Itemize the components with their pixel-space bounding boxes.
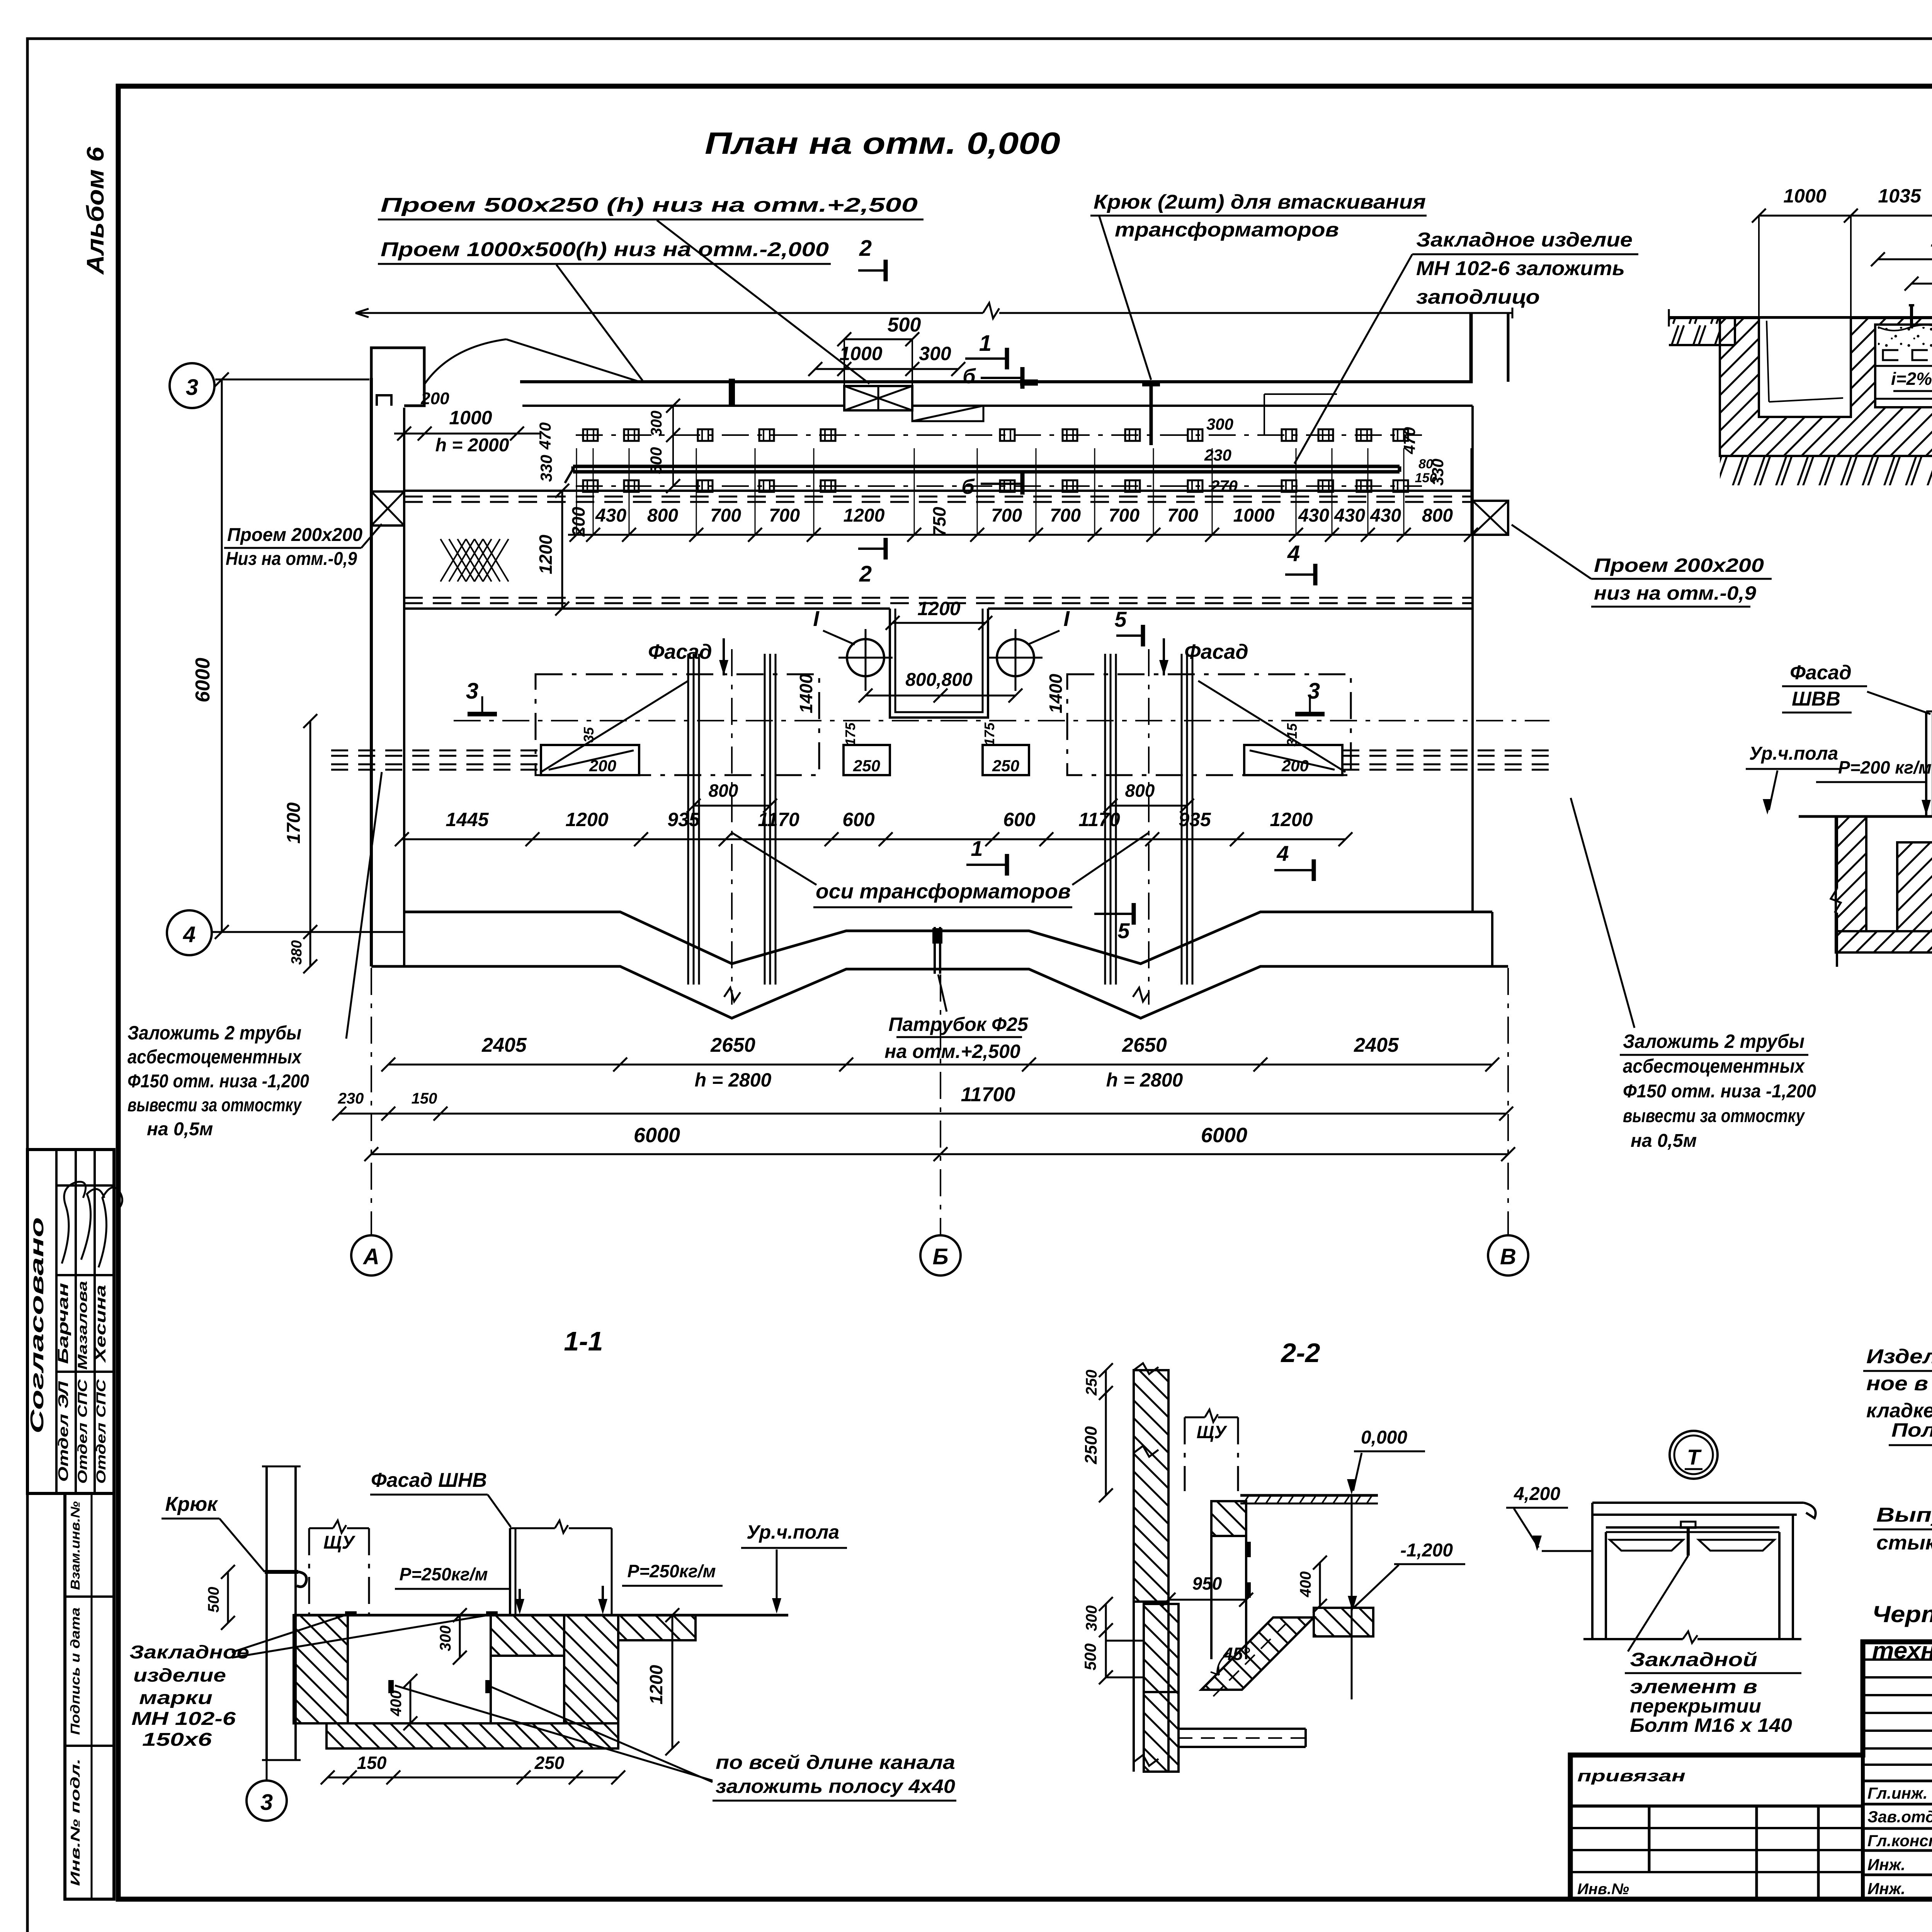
svg-text:Отдел СПС: Отдел СПС bbox=[75, 1379, 90, 1484]
svg-text:Гл.инж.: Гл.инж. bbox=[1867, 1784, 1928, 1802]
svg-text:500: 500 bbox=[205, 1587, 222, 1613]
svg-text:430: 430 bbox=[1298, 505, 1329, 526]
svg-text:1400: 1400 bbox=[1046, 673, 1066, 713]
svg-text:Чертеж разработан Новосиб: Чертеж разработан Новосибирским проектно… bbox=[1872, 1601, 1932, 1627]
svg-text:2500: 2500 bbox=[1082, 1426, 1100, 1464]
svg-text:1-1: 1-1 bbox=[564, 1326, 603, 1356]
svg-text:330: 330 bbox=[1429, 459, 1447, 486]
svg-text:470: 470 bbox=[1400, 427, 1418, 454]
svg-text:асбестоцементных: асбестоцементных bbox=[128, 1046, 302, 1068]
svg-text:6000: 6000 bbox=[192, 658, 214, 702]
svg-text:Заложить 2 трубы: Заложить 2 трубы bbox=[128, 1022, 301, 1044]
svg-text:1: 1 bbox=[979, 331, 992, 356]
svg-text:на отм.+2,500: на отм.+2,500 bbox=[884, 1041, 1020, 1062]
svg-text:1700: 1700 bbox=[284, 802, 304, 844]
svg-text:Ур.ч.пола: Ур.ч.пола bbox=[747, 1521, 839, 1543]
svg-text:Крюк (2шт) для втаскивания: Крюк (2шт) для втаскивания bbox=[1094, 191, 1426, 213]
svg-text:вывести за отмостку: вывести за отмостку bbox=[1623, 1106, 1805, 1126]
svg-text:800,800: 800,800 bbox=[905, 670, 973, 690]
svg-text:Б: Б bbox=[932, 1244, 948, 1269]
svg-text:935: 935 bbox=[667, 809, 700, 830]
svg-text:1400: 1400 bbox=[796, 673, 816, 713]
svg-text:Фасад: Фасад bbox=[1184, 640, 1248, 663]
svg-text:Согласовано: Согласовано bbox=[27, 1217, 48, 1434]
svg-text:i=2%: i=2% bbox=[1891, 369, 1932, 389]
svg-text:2-2: 2-2 bbox=[1280, 1338, 1320, 1368]
svg-text:МН 102-6 заложить: МН 102-6 заложить bbox=[1416, 257, 1625, 280]
svg-text:изделие: изделие bbox=[133, 1665, 226, 1686]
svg-text:230: 230 bbox=[338, 1090, 364, 1107]
svg-text:330: 330 bbox=[537, 455, 555, 482]
svg-text:I: I bbox=[813, 606, 820, 631]
svg-text:200: 200 bbox=[589, 757, 616, 775]
svg-text:В: В bbox=[1500, 1244, 1516, 1269]
svg-text:ЩУ: ЩУ bbox=[1197, 1422, 1228, 1442]
svg-text:ШВВ: ШВВ bbox=[1792, 688, 1840, 710]
svg-text:4: 4 bbox=[183, 922, 196, 947]
svg-text:оси трансформаторов: оси трансформаторов bbox=[816, 880, 1071, 903]
svg-text:Болт М16 х 140: Болт М16 х 140 bbox=[1630, 1714, 1792, 1736]
svg-text:заподлицо: заподлицо bbox=[1416, 286, 1540, 308]
svg-text:700: 700 bbox=[1109, 505, 1139, 526]
svg-text:марки: марки bbox=[139, 1688, 213, 1708]
svg-text:430: 430 bbox=[1334, 505, 1365, 526]
svg-text:315: 315 bbox=[1284, 723, 1300, 747]
svg-text:300: 300 bbox=[437, 1626, 454, 1651]
svg-text:Изделие заклад-: Изделие заклад- bbox=[1866, 1345, 1932, 1368]
svg-text:на 0,5м: на 0,5м bbox=[1631, 1131, 1697, 1151]
svg-text:150: 150 bbox=[412, 1090, 437, 1107]
svg-text:трансформаторов: трансформаторов bbox=[1115, 219, 1339, 241]
svg-text:Фасад: Фасад bbox=[648, 640, 712, 663]
svg-text:1550: 1550 bbox=[1930, 229, 1932, 251]
svg-text:б: б bbox=[961, 475, 975, 498]
svg-text:привязан: привязан bbox=[1577, 1767, 1685, 1785]
svg-text:175: 175 bbox=[981, 722, 997, 746]
svg-text:380: 380 bbox=[289, 940, 305, 964]
svg-text:700: 700 bbox=[769, 505, 800, 526]
svg-text:1000: 1000 bbox=[1783, 185, 1826, 207]
svg-text:300: 300 bbox=[919, 343, 951, 364]
svg-text:Патрубок Ф25: Патрубок Ф25 bbox=[888, 1014, 1028, 1035]
svg-text:750: 750 bbox=[929, 507, 949, 536]
svg-text:230: 230 bbox=[1204, 446, 1231, 464]
svg-text:элемент в: элемент в bbox=[1630, 1676, 1757, 1697]
svg-text:1000: 1000 bbox=[839, 343, 882, 364]
svg-text:Альбом 6: Альбом 6 bbox=[82, 146, 109, 275]
svg-text:ное в кирпичной: ное в кирпичной bbox=[1866, 1372, 1932, 1395]
svg-text:1200: 1200 bbox=[565, 809, 608, 830]
svg-text:Мазалова: Мазалова bbox=[75, 1281, 90, 1370]
svg-text:асбестоцементных: асбестоцементных bbox=[1623, 1055, 1805, 1077]
svg-text:Ур.ч.пола: Ур.ч.пола bbox=[1749, 743, 1838, 764]
svg-text:Зав.отд.: Зав.отд. bbox=[1867, 1808, 1932, 1826]
svg-text:250: 250 bbox=[1083, 1370, 1100, 1396]
svg-text:300: 300 bbox=[1083, 1605, 1100, 1631]
svg-text:3: 3 bbox=[186, 375, 198, 400]
svg-text:перекрытии: перекрытии bbox=[1630, 1695, 1761, 1717]
svg-text:470: 470 bbox=[536, 422, 554, 450]
svg-text:низ на отм.-0,9: низ на отм.-0,9 bbox=[1594, 582, 1756, 604]
svg-text:0,000: 0,000 bbox=[1361, 1427, 1407, 1448]
svg-text:1200: 1200 bbox=[536, 534, 556, 574]
svg-text:200: 200 bbox=[420, 389, 449, 408]
svg-text:Гл.констр: Гл.констр bbox=[1867, 1832, 1932, 1850]
svg-text:150: 150 bbox=[357, 1753, 387, 1773]
svg-text:Заложить 2 трубы: Заложить 2 трубы bbox=[1623, 1031, 1804, 1052]
svg-text:МН 102-6: МН 102-6 bbox=[131, 1709, 236, 1729]
svg-text:270: 270 bbox=[1210, 477, 1238, 495]
svg-text:2: 2 bbox=[859, 561, 872, 587]
svg-text:2405: 2405 bbox=[1354, 1034, 1399, 1056]
svg-text:600: 600 bbox=[1003, 809, 1036, 830]
svg-text:кладке: кладке bbox=[1866, 1400, 1932, 1422]
svg-text:Отдел СПС: Отдел СПС bbox=[94, 1379, 109, 1484]
svg-text:Подпись и дата: Подпись и дата bbox=[68, 1607, 82, 1735]
svg-text:P=200 кг/м: P=200 кг/м bbox=[1838, 757, 1932, 777]
svg-text:500: 500 bbox=[647, 447, 665, 474]
svg-text:Крюк: Крюк bbox=[165, 1493, 218, 1515]
svg-text:6000: 6000 bbox=[1201, 1124, 1247, 1147]
svg-text:Взам.инв.№: Взам.инв.№ bbox=[68, 1501, 82, 1590]
svg-text:h = 2800: h = 2800 bbox=[695, 1069, 772, 1091]
svg-text:4: 4 bbox=[1287, 541, 1300, 566]
svg-text:Инв.№: Инв.№ bbox=[1577, 1881, 1629, 1898]
svg-text:Ф150 отм. низа -1,200: Ф150 отм. низа -1,200 bbox=[1623, 1081, 1816, 1102]
svg-text:600: 600 bbox=[842, 809, 875, 830]
svg-text:800: 800 bbox=[647, 505, 678, 526]
svg-text:400: 400 bbox=[388, 1690, 405, 1717]
svg-text:Т: Т bbox=[1687, 1445, 1702, 1469]
svg-text:1200: 1200 bbox=[917, 598, 960, 619]
svg-text:200: 200 bbox=[1281, 757, 1309, 775]
svg-text:3: 3 bbox=[466, 679, 478, 704]
svg-text:Полоса 4х25: Полоса 4х25 bbox=[1891, 1419, 1932, 1441]
svg-text:6000: 6000 bbox=[634, 1124, 680, 1147]
svg-text:2405: 2405 bbox=[481, 1034, 527, 1056]
svg-text:500: 500 bbox=[888, 314, 921, 336]
svg-text:1200: 1200 bbox=[1270, 809, 1313, 830]
svg-text:1200: 1200 bbox=[844, 505, 885, 526]
svg-text:700: 700 bbox=[1167, 505, 1198, 526]
svg-text:5: 5 bbox=[1117, 918, 1130, 943]
svg-text:Хесина: Хесина bbox=[93, 1285, 109, 1363]
svg-text:2650: 2650 bbox=[1122, 1034, 1167, 1056]
svg-text:Низ на отм.-0,9: Низ на отм.-0,9 bbox=[226, 549, 357, 569]
svg-text:2: 2 bbox=[859, 236, 872, 261]
svg-text:430: 430 bbox=[1370, 505, 1401, 526]
svg-text:-1,200: -1,200 bbox=[1400, 1540, 1453, 1561]
svg-text:вывести за отмостку: вывести за отмостку bbox=[128, 1095, 302, 1116]
svg-text:Инв.№ подл.: Инв.№ подл. bbox=[68, 1759, 82, 1886]
svg-text:200: 200 bbox=[568, 507, 588, 537]
svg-text:250: 250 bbox=[992, 757, 1019, 775]
svg-text:Закладной: Закладной bbox=[1630, 1649, 1757, 1670]
svg-text:1170: 1170 bbox=[1078, 809, 1120, 830]
svg-text:1000: 1000 bbox=[449, 407, 492, 429]
svg-text:Закладное изделие: Закладное изделие bbox=[1416, 229, 1633, 251]
svg-text:P=250кг/м: P=250кг/м bbox=[400, 1564, 488, 1584]
svg-text:Выпуски из: Выпуски из bbox=[1876, 1504, 1932, 1526]
svg-text:Ф150 отм. низа -1,200: Ф150 отм. низа -1,200 bbox=[128, 1071, 309, 1092]
svg-text:Проем 500х250 (h) низ на отм.+: Проем 500х250 (h) низ на отм.+2,500 bbox=[381, 194, 918, 216]
svg-text:Проем 200х200: Проем 200х200 bbox=[227, 525, 362, 545]
svg-text:2650: 2650 bbox=[710, 1034, 755, 1056]
svg-text:Инж.: Инж. bbox=[1867, 1855, 1905, 1874]
svg-text:935: 935 bbox=[1179, 809, 1211, 830]
svg-text:150х6: 150х6 bbox=[142, 1730, 212, 1750]
svg-text:План на отм. 0,000: План на отм. 0,000 bbox=[705, 126, 1060, 160]
svg-text:400: 400 bbox=[1297, 1571, 1314, 1598]
svg-text:Фасад: Фасад bbox=[1790, 662, 1852, 684]
svg-text:4,200: 4,200 bbox=[1514, 1484, 1560, 1504]
svg-text:б: б bbox=[963, 365, 976, 388]
svg-text:700: 700 bbox=[710, 505, 741, 526]
svg-text:700: 700 bbox=[1050, 505, 1081, 526]
svg-text:11700: 11700 bbox=[961, 1083, 1015, 1106]
svg-text:ЩУ: ЩУ bbox=[323, 1532, 355, 1553]
svg-text:800: 800 bbox=[1125, 781, 1155, 801]
svg-text:5: 5 bbox=[1114, 607, 1127, 631]
svg-text:4: 4 bbox=[1276, 841, 1289, 866]
svg-text:по всей длине канала: по всей длине канала bbox=[716, 1752, 955, 1773]
svg-text:500: 500 bbox=[1081, 1643, 1099, 1670]
svg-text:Закладное: Закладное bbox=[129, 1642, 249, 1663]
svg-text:430: 430 bbox=[595, 505, 626, 526]
svg-text:стыков стен: стыков стен bbox=[1876, 1532, 1932, 1554]
svg-text:Инж.: Инж. bbox=[1867, 1879, 1905, 1898]
svg-text:Проем 200х200: Проем 200х200 bbox=[1594, 554, 1764, 576]
svg-text:P=250кг/м: P=250кг/м bbox=[628, 1561, 716, 1581]
svg-text:250: 250 bbox=[534, 1753, 565, 1773]
svg-text:1445: 1445 bbox=[446, 809, 489, 830]
svg-text:1000: 1000 bbox=[1233, 505, 1275, 526]
svg-text:300: 300 bbox=[648, 411, 665, 437]
svg-text:I: I bbox=[1063, 606, 1070, 631]
svg-text:1035: 1035 bbox=[1878, 185, 1921, 207]
svg-text:1200: 1200 bbox=[646, 1665, 666, 1704]
svg-text:250: 250 bbox=[853, 757, 880, 775]
svg-text:h = 2000: h = 2000 bbox=[435, 435, 509, 456]
svg-text:700: 700 bbox=[991, 505, 1022, 526]
svg-text:Барчан: Барчан bbox=[55, 1283, 71, 1364]
svg-text:35: 35 bbox=[581, 727, 597, 743]
svg-text:на 0,5м: на 0,5м bbox=[147, 1119, 213, 1139]
svg-text:h = 2800: h = 2800 bbox=[1106, 1069, 1183, 1091]
svg-text:950: 950 bbox=[1192, 1573, 1222, 1594]
svg-text:300: 300 bbox=[1206, 415, 1233, 433]
svg-text:Отдел ЭЛ: Отдел ЭЛ bbox=[55, 1381, 71, 1482]
svg-text:Проем 1000х500(h) низ на отм.-: Проем 1000х500(h) низ на отм.-2,000 bbox=[381, 238, 829, 261]
svg-text:Фасад ШНВ: Фасад ШНВ bbox=[371, 1469, 487, 1492]
svg-text:800: 800 bbox=[1422, 505, 1453, 526]
svg-text:3: 3 bbox=[260, 1790, 273, 1815]
svg-text:заложить полосу 4х40: заложить полосу 4х40 bbox=[716, 1776, 955, 1797]
svg-text:А: А bbox=[362, 1244, 379, 1269]
svg-text:800: 800 bbox=[709, 781, 738, 801]
svg-text:175: 175 bbox=[842, 722, 858, 746]
